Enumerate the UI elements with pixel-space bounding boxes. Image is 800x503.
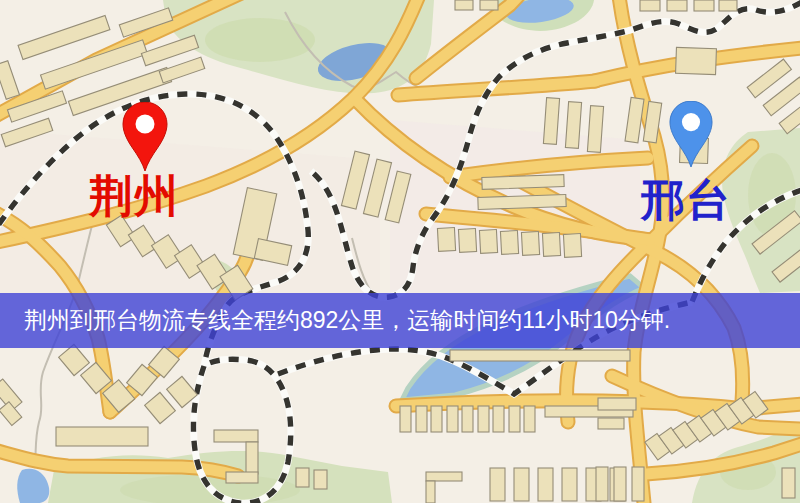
destination-pin-icon xyxy=(669,101,713,168)
destination-pin[interactable] xyxy=(669,101,715,171)
route-caption-text: 荆州到邢台物流专线全程约892公里，运输时间约11小时10分钟. xyxy=(24,307,670,333)
map-image xyxy=(0,0,800,503)
destination-label: 邢台 xyxy=(641,179,731,223)
route-caption-banner: 荆州到邢台物流专线全程约892公里，运输时间约11小时10分钟. xyxy=(0,293,800,348)
origin-pin[interactable] xyxy=(122,102,168,172)
origin-pin-icon xyxy=(122,102,168,172)
logistics-map-screenshot: 荆州 邢台 荆州到邢台物流专线全程约892公里，运输时间约11小时10分钟. xyxy=(0,0,800,503)
origin-label: 荆州 xyxy=(89,175,179,219)
